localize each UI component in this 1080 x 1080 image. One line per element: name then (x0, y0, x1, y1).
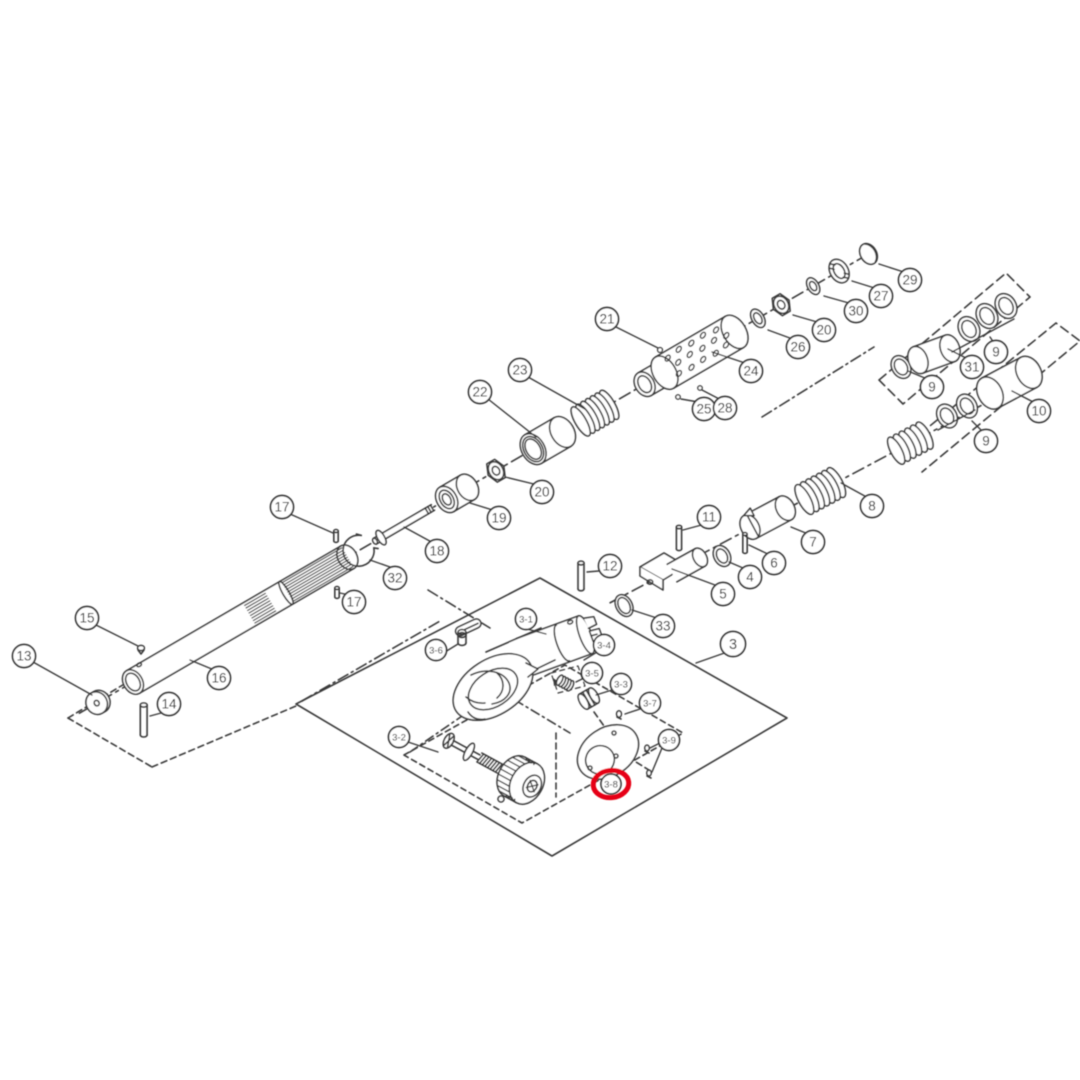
svg-text:3-2: 3-2 (392, 732, 406, 743)
svg-text:9: 9 (992, 345, 1000, 360)
svg-text:16: 16 (211, 671, 226, 686)
svg-text:10: 10 (1031, 404, 1046, 419)
svg-text:22: 22 (472, 385, 487, 400)
svg-text:3-9: 3-9 (662, 735, 676, 746)
svg-text:9: 9 (928, 380, 936, 395)
svg-text:21: 21 (599, 312, 614, 327)
svg-text:27: 27 (873, 289, 888, 304)
svg-text:6: 6 (770, 556, 778, 571)
svg-text:19: 19 (491, 511, 506, 526)
svg-text:3-8: 3-8 (604, 779, 618, 790)
svg-text:3-6: 3-6 (429, 645, 443, 656)
svg-text:26: 26 (790, 340, 805, 355)
svg-text:23: 23 (512, 363, 527, 378)
svg-text:17: 17 (274, 500, 289, 515)
svg-text:28: 28 (717, 401, 732, 416)
svg-text:13: 13 (16, 649, 31, 664)
svg-text:31: 31 (964, 360, 979, 375)
svg-text:29: 29 (902, 273, 917, 288)
svg-text:30: 30 (848, 304, 863, 319)
svg-text:33: 33 (655, 619, 670, 634)
svg-text:3: 3 (729, 637, 737, 653)
svg-text:12: 12 (602, 559, 617, 574)
svg-text:4: 4 (746, 570, 754, 585)
svg-text:20: 20 (534, 485, 549, 500)
svg-text:3-4: 3-4 (597, 640, 611, 651)
svg-text:5: 5 (719, 587, 727, 602)
svg-text:14: 14 (161, 697, 177, 712)
svg-text:3-5: 3-5 (585, 668, 599, 679)
svg-text:7: 7 (809, 535, 817, 550)
svg-text:3-1: 3-1 (519, 614, 533, 625)
svg-text:24: 24 (743, 364, 759, 379)
svg-text:3-3: 3-3 (614, 679, 628, 690)
svg-text:11: 11 (702, 510, 716, 525)
svg-text:17: 17 (346, 595, 361, 610)
svg-text:32: 32 (387, 571, 402, 586)
svg-text:15: 15 (79, 611, 94, 626)
svg-text:9: 9 (982, 434, 990, 449)
svg-text:3-7: 3-7 (643, 698, 657, 709)
svg-text:8: 8 (868, 499, 876, 514)
svg-text:25: 25 (696, 402, 711, 417)
svg-text:20: 20 (816, 323, 831, 338)
svg-text:18: 18 (429, 544, 444, 559)
